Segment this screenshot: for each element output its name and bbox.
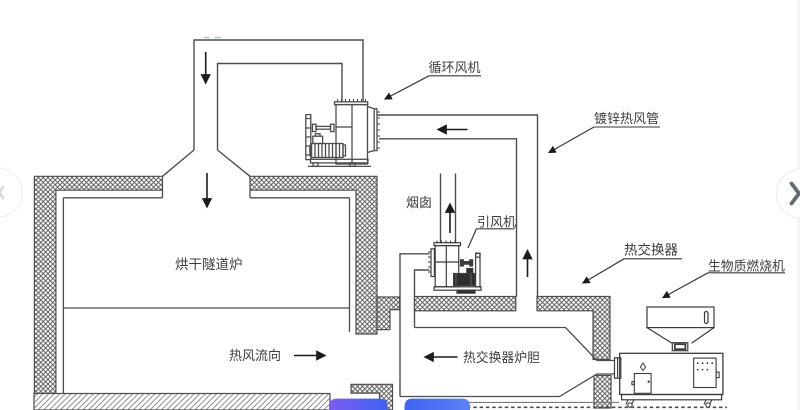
svg-text:引风机: 引风机 xyxy=(477,215,516,230)
svg-text:烟囱: 烟囱 xyxy=(406,195,432,210)
svg-text:热交换器: 热交换器 xyxy=(624,242,678,258)
svg-text:生物质燃烧机: 生物质燃烧机 xyxy=(708,259,785,274)
svg-text:循环风机: 循环风机 xyxy=(429,60,481,75)
svg-text:烘干隧道炉: 烘干隧道炉 xyxy=(175,257,243,272)
svg-text:热交换器炉胆: 热交换器炉胆 xyxy=(463,350,540,365)
svg-text:镀锌热风管: 镀锌热风管 xyxy=(594,111,659,126)
svg-text:热风流向: 热风流向 xyxy=(229,348,281,363)
